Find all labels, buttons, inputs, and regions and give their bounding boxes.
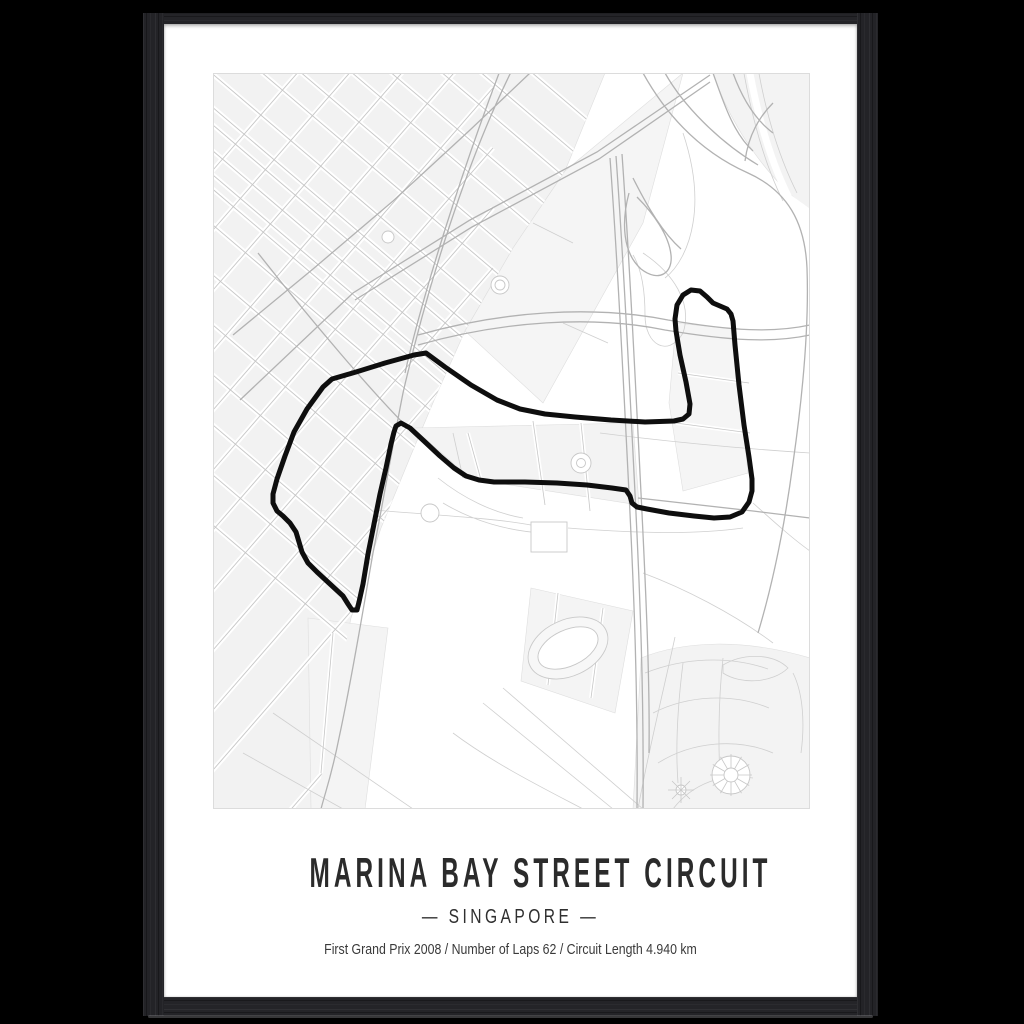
poster-title: MARINA BAY STREET CIRCUIT [310, 852, 712, 894]
poster-details: First Grand Prix 2008 / Number of Laps 6… [216, 943, 805, 959]
framed-poster-photo: MARINA BAY STREET CIRCUIT — SINGAPORE — … [0, 0, 1024, 1024]
street-map-svg [213, 73, 810, 809]
singapore-flyer-hub-icon [495, 280, 505, 290]
floating-platform [531, 522, 567, 552]
poster-mat: MARINA BAY STREET CIRCUIT — SINGAPORE — … [164, 24, 857, 997]
poster-frame: MARINA BAY STREET CIRCUIT — SINGAPORE — … [143, 13, 878, 1016]
roundabout-icon [382, 231, 394, 243]
poster-caption: MARINA BAY STREET CIRCUIT — SINGAPORE — … [164, 809, 857, 959]
roundabout-icon [421, 504, 439, 522]
frame-left-edge [143, 13, 164, 1016]
poster-subtitle: — SINGAPORE — [240, 907, 781, 927]
frame-right-edge [857, 13, 878, 1016]
circuit-map [213, 73, 810, 809]
